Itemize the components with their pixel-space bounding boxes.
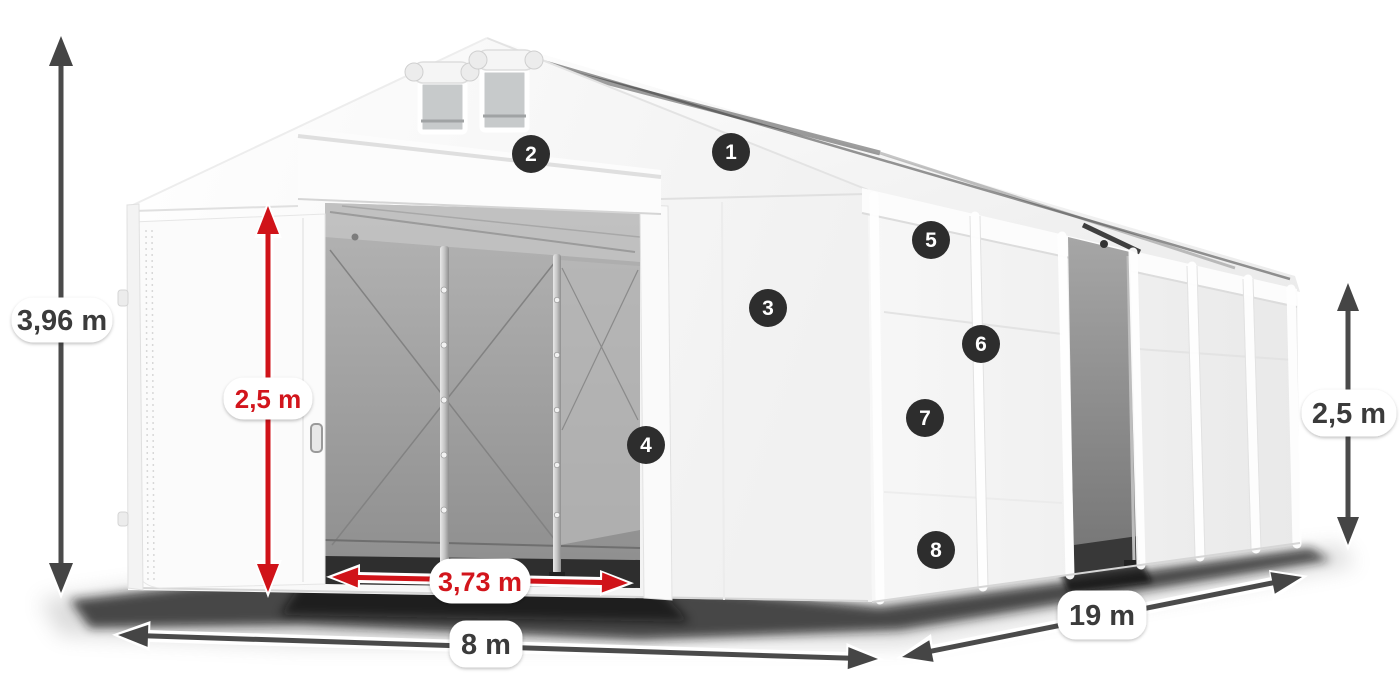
total-height-value: 3,96 m xyxy=(17,305,107,337)
entrance-width-label: 3,73 m xyxy=(432,561,528,601)
svg-text:3: 3 xyxy=(762,297,774,320)
svg-text:4: 4 xyxy=(640,434,652,457)
feature-marker-5: 5 xyxy=(912,221,950,259)
feature-marker-8: 8 xyxy=(917,531,955,569)
tent-illustration xyxy=(118,38,1300,602)
side-height-label: 2,5 m xyxy=(1304,392,1394,434)
feature-marker-1: 1 xyxy=(712,133,750,171)
front-opening-interior xyxy=(325,203,640,588)
svg-text:6: 6 xyxy=(975,333,987,356)
feature-marker-3: 3 xyxy=(749,289,787,327)
front-width-label: 8 m xyxy=(452,623,520,665)
interior-pole-left xyxy=(440,246,449,572)
feature-marker-6: 6 xyxy=(962,325,1000,363)
front-left-corner-column xyxy=(118,204,143,590)
front-width-value: 8 m xyxy=(461,629,511,661)
vent-window-right xyxy=(482,70,527,130)
svg-text:8: 8 xyxy=(930,539,942,562)
tent-dimension-diagram: 3,96 m 2,5 m 3,73 m 8 m 19 m 2,5 m 1 2 3 xyxy=(0,0,1400,700)
svg-text:1: 1 xyxy=(725,141,737,164)
feature-marker-4: 4 xyxy=(627,426,665,464)
vent-window-left xyxy=(420,82,465,132)
length-value: 19 m xyxy=(1069,600,1135,632)
diagram-canvas: 3,96 m 2,5 m 3,73 m 8 m 19 m 2,5 m 1 2 3 xyxy=(0,0,1400,700)
feature-marker-2: 2 xyxy=(512,135,550,173)
svg-text:5: 5 xyxy=(925,229,937,252)
side-height-value: 2,5 m xyxy=(1312,398,1386,430)
total-height-label: 3,96 m xyxy=(14,300,110,340)
door-handle xyxy=(311,424,322,452)
svg-text:2: 2 xyxy=(525,143,537,166)
front-opening-right-stile xyxy=(640,205,672,600)
length-label: 19 m xyxy=(1060,593,1144,637)
entrance-width-value: 3,73 m xyxy=(438,567,522,597)
entrance-height-value: 2,5 m xyxy=(235,384,302,414)
entrance-height-label: 2,5 m xyxy=(226,380,310,417)
svg-text:7: 7 xyxy=(919,407,931,430)
feature-marker-7: 7 xyxy=(906,399,944,437)
